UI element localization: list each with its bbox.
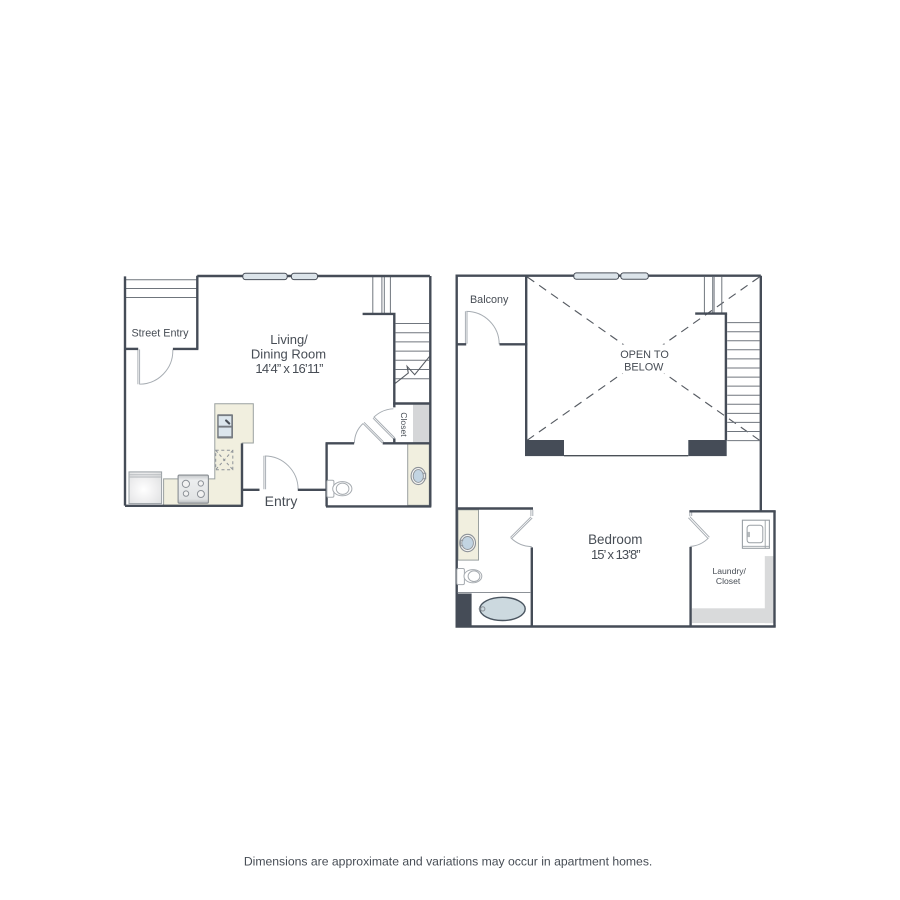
svg-text:Living/: Living/ <box>270 332 308 347</box>
svg-text:Entry: Entry <box>265 493 298 509</box>
svg-text:Dimensions are approximate and: Dimensions are approximate and variation… <box>244 855 652 869</box>
svg-text:Closet: Closet <box>716 576 741 586</box>
svg-text:14’4” x 16’11”: 14’4” x 16’11” <box>255 361 323 376</box>
svg-text:Balcony: Balcony <box>470 294 509 306</box>
svg-text:Bedroom: Bedroom <box>588 532 642 547</box>
svg-text:Dining Room: Dining Room <box>251 347 326 362</box>
svg-text:15’ x 13’8”: 15’ x 13’8” <box>591 547 640 562</box>
svg-text:Street Entry: Street Entry <box>131 328 189 340</box>
svg-text:Closet: Closet <box>399 412 409 437</box>
svg-text:Laundry/: Laundry/ <box>712 566 746 576</box>
svg-text:OPEN TO: OPEN TO <box>620 349 669 361</box>
svg-text:BELOW: BELOW <box>624 362 664 374</box>
